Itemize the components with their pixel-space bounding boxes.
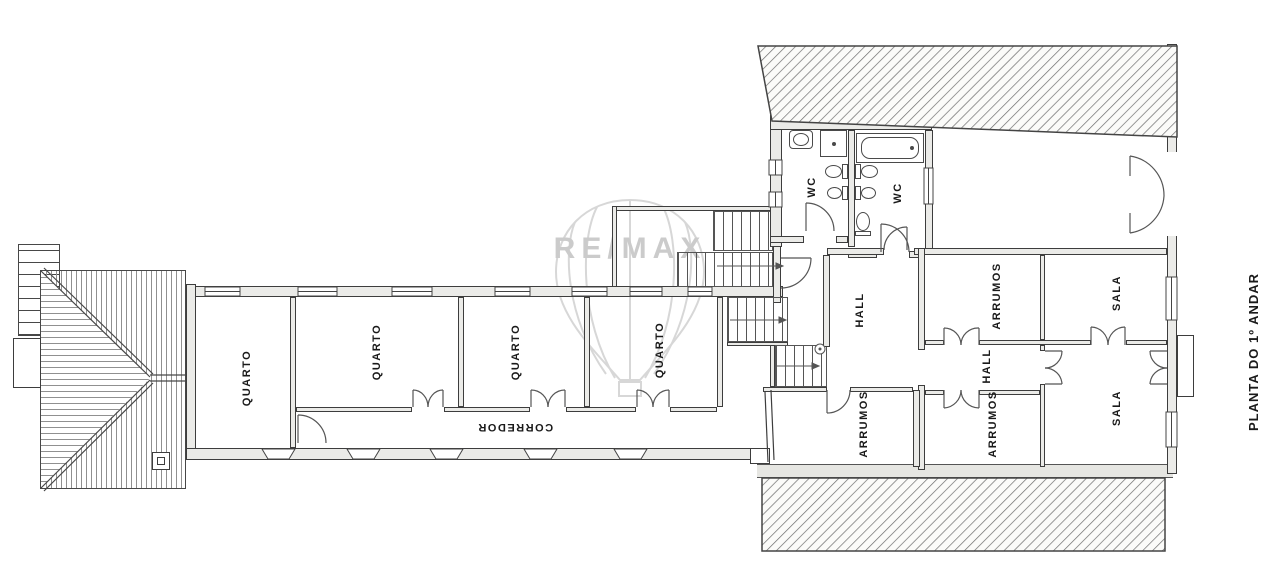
- wall-quarto2-3: [458, 297, 464, 407]
- wc-north-wall: [770, 118, 932, 130]
- bathtub-drain: [910, 146, 914, 150]
- toilet-icon: [861, 165, 878, 178]
- arrumos-left-north-wall: [763, 387, 827, 392]
- wall-quarto3-4: [584, 297, 590, 407]
- corridor-wall: [444, 407, 530, 412]
- room-label-wc-left: WC: [805, 172, 819, 202]
- stairs-upper-flight: [677, 252, 773, 287]
- wc-divider-wall: [848, 130, 855, 247]
- room-label-wc-right: WC: [891, 178, 905, 208]
- chimney-flue: [157, 457, 165, 465]
- hall-north-wall: [827, 248, 884, 255]
- roof-bay: [13, 338, 41, 388]
- shower-drain: [832, 142, 836, 146]
- toilet-tank: [842, 164, 848, 179]
- room-label-arrumos-top: ARRUMOS: [990, 246, 1004, 346]
- wall-quarto4: [717, 297, 723, 407]
- wing-west-wall: [186, 284, 196, 460]
- wc-east-wall: [925, 130, 933, 255]
- room-label-sala-bottom: SALA: [1110, 373, 1124, 443]
- room-label-corredor: CORREDOR: [465, 420, 565, 434]
- hatch-region-bottom: [762, 478, 1165, 551]
- stairwell-wall: [612, 206, 617, 287]
- south-step: [750, 448, 770, 464]
- room-label-quarto4: QUARTO: [653, 305, 667, 395]
- room-label-hall-main: HALL: [853, 275, 867, 345]
- room-block-north-wall: [914, 248, 1167, 255]
- bidet-icon: [861, 187, 876, 199]
- toilet-icon: [856, 212, 870, 231]
- wall-quarto1: [290, 297, 296, 448]
- corridor-wall: [296, 407, 412, 412]
- sala2-west-wall: [1040, 345, 1045, 351]
- room-label-quarto3: QUARTO: [509, 307, 523, 397]
- hall2-north-wall: [1126, 340, 1167, 345]
- wc1-south-wall: [770, 236, 804, 243]
- hall2-north-wall: [925, 340, 944, 345]
- wc1-south-wall: [836, 236, 848, 243]
- bidet-tank: [842, 186, 848, 200]
- block-west-wall: [918, 248, 925, 350]
- arrumos-left-east-wall: [913, 390, 920, 467]
- drawing-title: PLANTA DO 1º ANDAR: [1245, 277, 1261, 427]
- toilet-tank: [855, 231, 871, 236]
- hall2-south-wall: [925, 390, 944, 395]
- room-label-quarto1: QUARTO: [240, 333, 254, 423]
- arrumos-sala-wall: [1040, 255, 1045, 340]
- room-label-arrumos-left: ARRUMOS: [857, 374, 871, 474]
- sink-bowl: [793, 133, 809, 146]
- stairs-upper-flight: [713, 211, 773, 251]
- sala2-west-wall: [1040, 384, 1045, 467]
- wing-north-wall: [186, 286, 783, 297]
- floor-plan: RE/MAX: [0, 0, 1280, 571]
- wc-west-wall: [770, 115, 782, 247]
- wing-south-wall: [186, 448, 763, 460]
- corridor-wall: [670, 407, 717, 412]
- south-footing-strip: [757, 464, 1173, 478]
- stairs-lower-flight: [775, 345, 827, 387]
- bidet-icon: [827, 187, 842, 199]
- toilet-icon: [825, 165, 842, 178]
- room-label-arrumos-bottom: ARRUMOS: [986, 374, 1000, 474]
- balcony: [1177, 335, 1194, 397]
- east-outer-wall: [1167, 44, 1177, 474]
- stairs-mid-flight: [727, 297, 788, 342]
- room-label-sala-top: SALA: [1110, 258, 1124, 328]
- corridor-wall: [566, 407, 636, 412]
- room-label-quarto2: QUARTO: [370, 307, 384, 397]
- hall-west-wall: [823, 255, 830, 347]
